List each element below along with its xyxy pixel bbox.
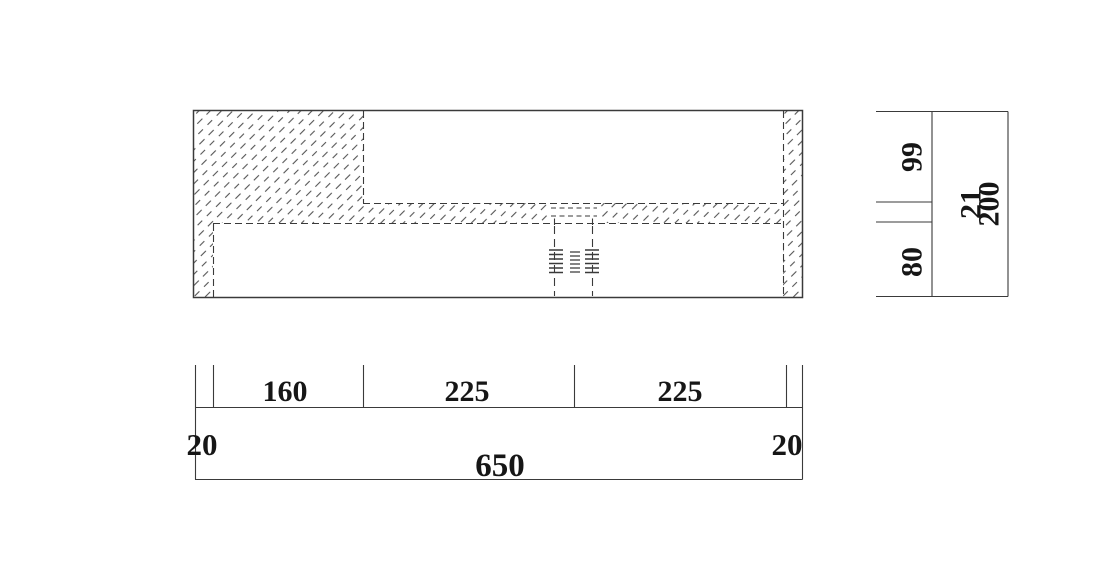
bottom-dimension-chain: 160 225 225 20 20 650 bbox=[187, 365, 803, 484]
bottom-dim-segment-label-2: 225 bbox=[445, 375, 490, 408]
bottom-dim-right-offset-label: 20 bbox=[772, 427, 803, 462]
drain-thread-center bbox=[570, 252, 580, 272]
bottom-dim-segment-label-3: 225 bbox=[658, 375, 703, 408]
bottom-dim-segment-label-1: 160 bbox=[263, 375, 308, 408]
hatch-right-wall bbox=[783, 110, 803, 298]
hatch-shelf-left bbox=[363, 203, 548, 223]
right-dim-upper-label: 99 bbox=[896, 142, 929, 172]
bottom-dim-left-offset-label: 20 bbox=[187, 427, 218, 462]
right-dim-lower-label: 80 bbox=[896, 247, 929, 277]
right-dimension-chain: 99 80 21 200 bbox=[876, 112, 1008, 297]
hatch-shelf-right bbox=[600, 203, 783, 223]
hatch-left-wall bbox=[193, 223, 213, 298]
section-view bbox=[193, 110, 803, 298]
drain-thread-left bbox=[549, 250, 563, 273]
technical-drawing: 99 80 21 200 160 225 225 20 20 650 bbox=[0, 0, 1112, 568]
right-dim-total-label: 200 bbox=[973, 182, 1006, 227]
hatch-top-left-block bbox=[193, 110, 363, 223]
cad-canvas: 99 80 21 200 160 225 225 20 20 650 bbox=[0, 0, 1112, 568]
drain-detail bbox=[549, 208, 599, 296]
bottom-dim-total-label: 650 bbox=[475, 448, 525, 484]
